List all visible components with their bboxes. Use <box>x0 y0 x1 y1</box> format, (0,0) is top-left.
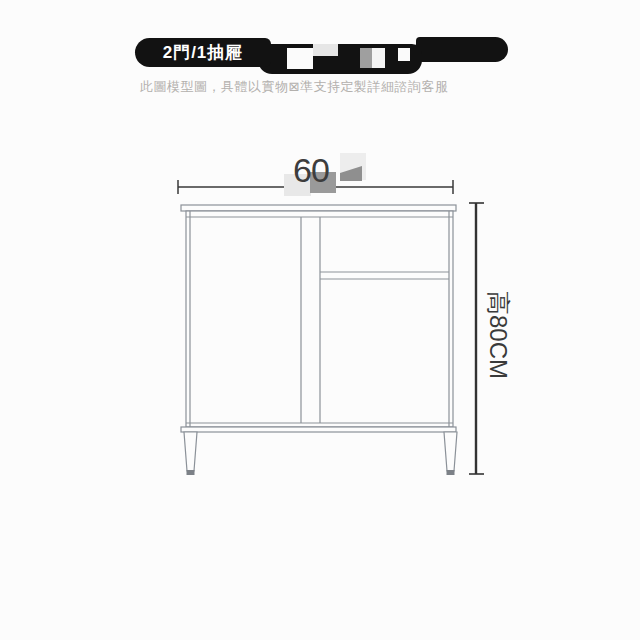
banner-redacted-section <box>258 44 422 74</box>
cabinet-top-panel <box>181 205 456 211</box>
left-leg-foot <box>187 470 195 475</box>
height-dimension-line <box>469 203 484 474</box>
width-dimension-label: 60 <box>293 151 329 189</box>
cabinet-dimension-drawing: 60 <box>0 0 640 640</box>
redaction-block <box>313 44 338 56</box>
banner-right-bar <box>416 37 508 62</box>
height-dimension-label: 高80CM <box>485 291 512 379</box>
cabinet-bottom-rail <box>181 427 456 432</box>
cabinet-outline <box>181 205 457 475</box>
banner-label-text: 2門/1抽屜 <box>163 41 244 64</box>
redaction-block <box>372 48 385 68</box>
right-leg-foot <box>447 470 455 475</box>
product-dimension-page: 2門/1抽屜 此圖模型圖，具體以實物⊠準支持定製詳細諮詢客服 60 <box>0 0 640 640</box>
left-leg <box>184 432 197 471</box>
right-leg <box>444 432 457 471</box>
redaction-block <box>360 48 372 68</box>
redaction-block <box>287 48 313 69</box>
redaction-block <box>398 48 410 61</box>
banner-label-pill: 2門/1抽屜 <box>135 38 271 67</box>
